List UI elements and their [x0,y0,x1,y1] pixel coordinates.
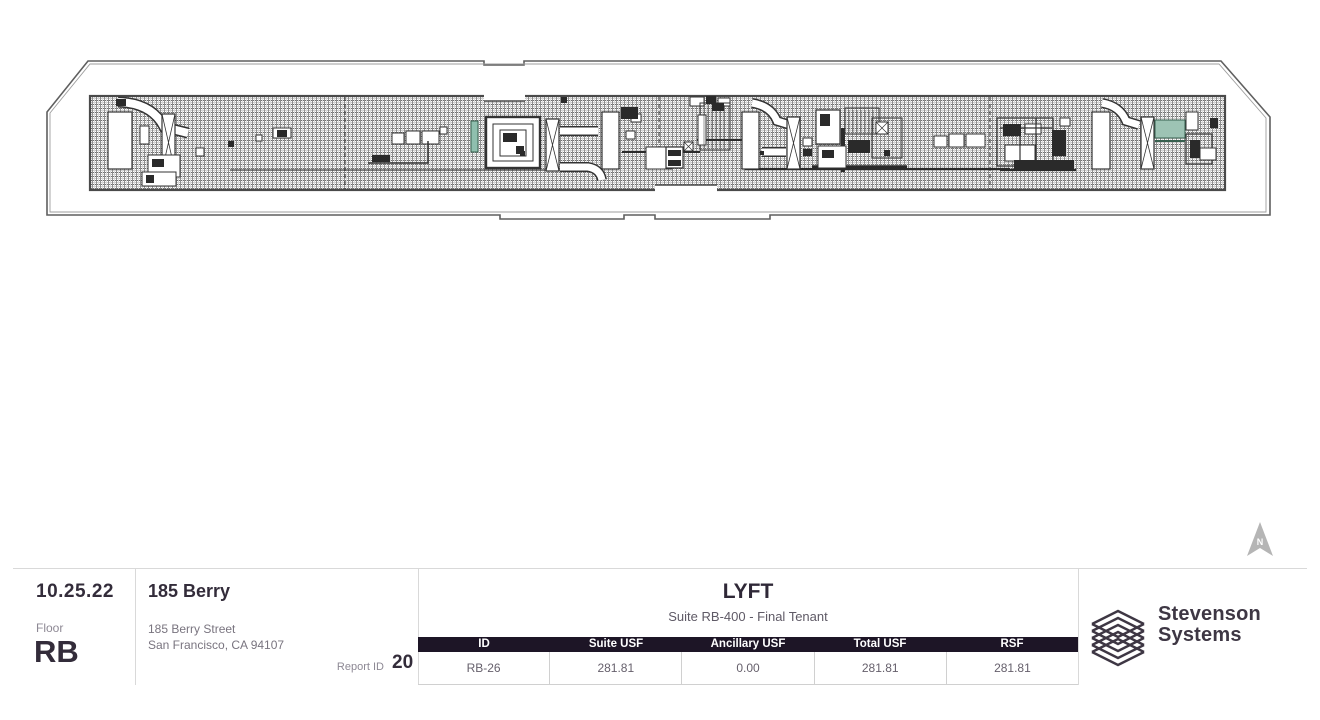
tenant-table-row: RB-26 281.81 0.00 281.81 281.81 [418,652,1078,685]
report-date: 10.25.22 [36,581,114,603]
logo-line-1: Stevenson [1158,604,1261,625]
floor-plan [0,0,1320,560]
core-room [486,117,540,168]
svg-text:N: N [1257,537,1264,547]
address-line-2: San Francisco, CA 94107 [148,638,284,652]
cell-id: RB-26 [418,652,549,684]
address-line-1: 185 Berry Street [148,622,235,636]
building-name: 185 Berry [148,581,230,602]
report-id-label: Report ID [280,661,384,673]
col-header-total-usf: Total USF [814,637,946,652]
col-header-rsf: RSF [946,637,1078,652]
stevenson-systems-logo-text: Stevenson Systems [1158,604,1261,646]
footer-divider [13,568,1307,569]
cell-total-usf: 281.81 [814,652,946,684]
cell-rsf: 281.81 [946,652,1078,684]
cell-suite-usf: 281.81 [549,652,681,684]
tenant-name: LYFT [418,580,1078,604]
col-header-id: ID [418,637,550,652]
cell-ancillary-usf: 0.00 [681,652,813,684]
stevenson-systems-logo-icon [1090,604,1146,672]
logo-line-2: Systems [1158,625,1261,646]
report-page: N 10.25.22 Floor RB 185 Berry 185 Berry … [0,0,1320,720]
north-arrow-icon: N [1242,518,1278,560]
report-id-value: 20 [392,652,413,674]
tenant-table-header: ID Suite USF Ancillary USF Total USF RSF [418,637,1078,652]
tenant-suite-subtitle: Suite RB-400 - Final Tenant [418,609,1078,624]
floor-value: RB [34,634,79,670]
footer-separator-1 [135,568,136,685]
col-header-suite-usf: Suite USF [550,637,682,652]
floor-label: Floor [36,621,63,635]
col-header-ancillary-usf: Ancillary USF [682,637,814,652]
footer-separator-3 [1078,568,1079,685]
